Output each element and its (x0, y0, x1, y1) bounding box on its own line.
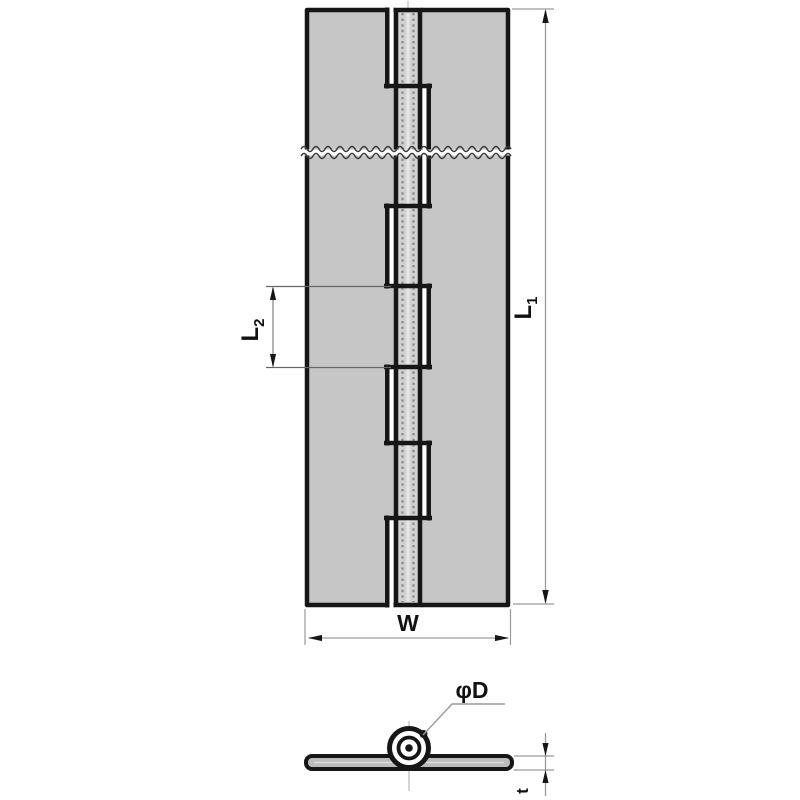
left-leaf-edge-line (385, 365, 390, 446)
l2-arrow-down (270, 354, 276, 368)
knuckle-gap-left (390, 204, 394, 289)
knuckle-step-line (384, 365, 432, 370)
right-leaf-edge-line (427, 284, 432, 370)
pin-diameter-label: φD (455, 677, 488, 703)
l1-arrow-down (542, 590, 548, 604)
dimension-t: t (513, 733, 554, 796)
w-label: W (397, 610, 419, 636)
hinge-top-view (300, 1, 514, 608)
l1-arrow-up (542, 9, 548, 23)
dimension-l1: L1 (510, 9, 554, 604)
hinge-side-view: φD (306, 677, 512, 791)
pin-diameter-leader-line (423, 704, 505, 735)
knuckle-gap-right (423, 284, 427, 370)
t-arrow-up (542, 770, 548, 783)
right-leaf-edge-line (427, 441, 432, 521)
l2-arrow-up (270, 287, 276, 301)
left-leaf (305, 10, 395, 605)
knuckle-step-line (384, 204, 432, 209)
w-arrow-right (495, 635, 509, 641)
knuckle-step-line (384, 441, 432, 446)
t-arrow-down (542, 743, 548, 756)
knuckle-gap-left (390, 516, 394, 608)
left-leaf-edge-line (385, 516, 390, 608)
right-leaf (421, 10, 510, 605)
piano-hinge-technical-drawing: L1 L2 W φD t (0, 0, 800, 800)
left-leaf-edge-line (385, 8, 390, 89)
dimension-w: W (305, 609, 511, 645)
knuckle-gap-left (390, 8, 394, 89)
knuckle-gap-left (390, 365, 394, 446)
knuckle-step-line (384, 284, 432, 289)
knuckle-step-line (384, 516, 432, 521)
knuckle-gap-right (423, 153, 427, 209)
hinge-drawing-page: L1 L2 W φD t (0, 0, 800, 800)
w-arrow-left (308, 635, 322, 641)
right-leaf-edge-line (427, 84, 432, 153)
right-leaf-edge-line (427, 153, 432, 209)
pin-center-dot (405, 744, 413, 752)
l2-label: L2 (237, 318, 268, 341)
knuckle-step-line (384, 84, 432, 89)
knuckle-gap-right (423, 84, 427, 153)
left-leaf-edge-line (385, 204, 390, 289)
knuckle-gap-right (423, 441, 427, 521)
t-label: t (513, 788, 532, 794)
l1-label: L1 (510, 296, 541, 319)
